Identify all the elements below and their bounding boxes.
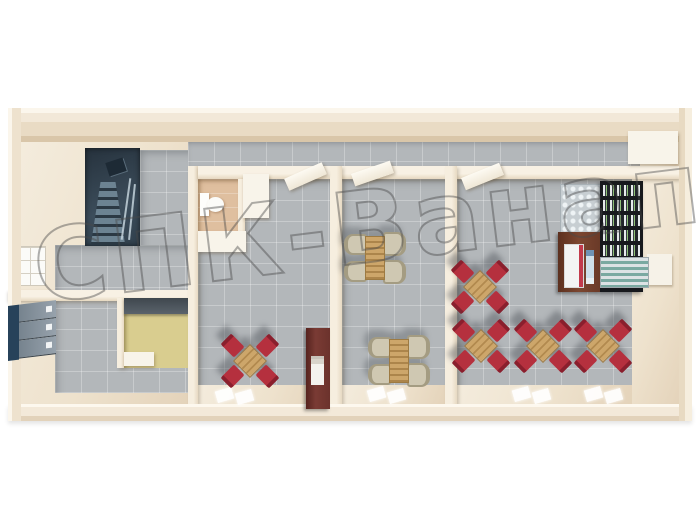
entry-corridor-floor bbox=[140, 150, 188, 252]
dining-table bbox=[366, 237, 384, 279]
bottle-rack-row bbox=[603, 185, 640, 196]
dishroom-wall bbox=[117, 298, 124, 368]
beige-chair bbox=[344, 234, 367, 255]
bottle-rack-row bbox=[603, 200, 640, 211]
product-box bbox=[564, 244, 584, 288]
beige-chair bbox=[407, 363, 430, 387]
burgundy-cabinet bbox=[306, 328, 330, 409]
display-cooler bbox=[600, 257, 649, 288]
locker-label bbox=[46, 324, 52, 331]
dining-set-red bbox=[577, 320, 629, 372]
beige-chair bbox=[407, 335, 430, 359]
beige-chair bbox=[383, 232, 406, 256]
interior-wall-2 bbox=[330, 166, 342, 404]
cabinet-open-door bbox=[311, 356, 324, 385]
bottle-rack-row bbox=[603, 245, 640, 256]
red-chair bbox=[255, 364, 279, 388]
staircase-opening bbox=[85, 148, 140, 246]
locker-side-panel bbox=[8, 305, 19, 361]
washroom-counter bbox=[198, 231, 246, 252]
dining-set-red bbox=[517, 320, 569, 372]
dining-set-red bbox=[455, 320, 507, 372]
bottle-crates bbox=[560, 184, 602, 235]
locker-cabinet bbox=[8, 300, 57, 361]
locker-label bbox=[46, 342, 52, 349]
serving-counter bbox=[647, 254, 672, 285]
washroom-cabinet bbox=[243, 174, 269, 218]
interior-wall-1 bbox=[188, 166, 198, 404]
red-chair bbox=[486, 349, 510, 373]
product-shelf bbox=[558, 232, 600, 292]
product-bottle bbox=[586, 250, 594, 284]
top-corridor-floor bbox=[188, 140, 640, 168]
stair-steps bbox=[91, 182, 125, 244]
beige-chair bbox=[344, 261, 367, 282]
exterior-wall-left bbox=[8, 108, 21, 421]
dining-set-beige bbox=[368, 334, 430, 388]
floorplan-canvas: СПК-Ванап bbox=[0, 0, 700, 525]
bottle-rack-row bbox=[603, 230, 640, 241]
exterior-wall-top bbox=[8, 108, 692, 142]
dining-set-red bbox=[454, 261, 506, 313]
bottle-rack-row bbox=[603, 215, 640, 226]
red-chair bbox=[485, 290, 509, 314]
locker-label bbox=[46, 306, 52, 313]
dining-table bbox=[390, 340, 408, 382]
beige-chair bbox=[368, 364, 391, 385]
beige-chair bbox=[383, 260, 406, 284]
toilet-bowl bbox=[207, 197, 224, 212]
exterior-wall-bottom bbox=[8, 404, 692, 421]
beige-chair bbox=[368, 337, 391, 358]
dishroom-shelf bbox=[124, 352, 154, 366]
stair-landing-panel bbox=[105, 158, 126, 177]
dining-set-red bbox=[224, 335, 276, 387]
red-chair bbox=[608, 349, 632, 373]
red-chair bbox=[548, 349, 572, 373]
dishroom-counter bbox=[124, 298, 188, 314]
locker-door bbox=[19, 336, 56, 359]
ac-unit bbox=[628, 131, 678, 164]
exterior-wall-right bbox=[679, 108, 692, 421]
rooms-top-wall bbox=[198, 166, 680, 179]
dining-set-beige bbox=[344, 231, 406, 285]
